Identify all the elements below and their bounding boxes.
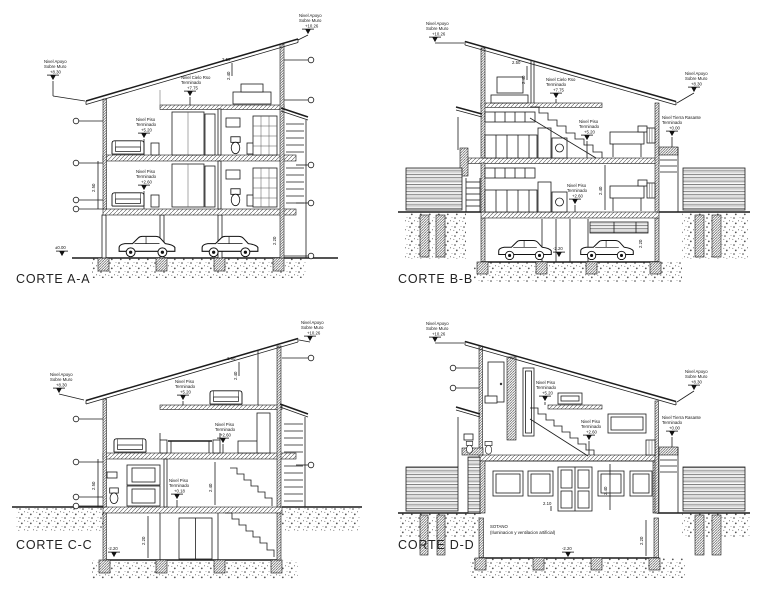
level-label-apoyo-left: Nivel Apoyo Sobre Muro +8.30 xyxy=(50,372,84,400)
level-value: +7.75 xyxy=(553,88,564,93)
main-floor-band: 2.10 2.40 xyxy=(479,455,659,513)
level-label-tierra-right: Nivel Tierra Rasante Terminado +0.00 xyxy=(662,115,702,147)
level-label-line2: Terminado xyxy=(136,122,157,127)
level-value: +10.26 xyxy=(432,32,446,37)
level-value: ±0.00 xyxy=(55,245,66,250)
dimension-label: 2.10 xyxy=(543,501,552,506)
section-title: CORTE B-B xyxy=(398,272,473,286)
dimension-label: 2.50 xyxy=(91,183,96,192)
level-label-line2: Terminado xyxy=(581,424,602,429)
level-label-line2: Terminado xyxy=(136,174,157,179)
level-label-apoyo-left: Nivel Apoyo Sobre Muro +8.30 xyxy=(44,59,85,101)
level-label-line2: Sobre Muro xyxy=(44,64,67,69)
dimension-label: 2.20 xyxy=(638,239,643,248)
level-value: +5.20 xyxy=(542,391,553,396)
level-value: +5.20 xyxy=(584,130,595,135)
dimension-label: 2.50 xyxy=(222,57,231,62)
attic-furniture xyxy=(233,84,271,104)
level-label-line2: Terminado xyxy=(662,420,683,425)
toilet-icon xyxy=(231,189,240,206)
section-title: CORTE D-D xyxy=(398,538,474,552)
sofa-icon xyxy=(114,439,146,452)
level-value: +10.26 xyxy=(432,332,446,337)
dimension-label: 2.40 xyxy=(226,71,231,80)
level-label-line2: Terminado xyxy=(175,384,196,389)
car-icon xyxy=(202,236,258,256)
level-label-basement: -2.20 xyxy=(553,246,565,257)
level-value: +10.26 xyxy=(307,331,321,336)
level-value: +5.20 xyxy=(141,128,152,133)
level-label-piso-attic: Nivel Piso Terminado +5.20 xyxy=(175,379,196,405)
level-label-piso-lower: Nivel Piso Terminado +2.60 xyxy=(567,183,588,212)
level-value: +10.26 xyxy=(305,24,319,29)
level-label-apoyo-right: Nivel Apoyo Sobre Muro +10.26 xyxy=(298,13,322,40)
dimension-label: 2.40 xyxy=(598,186,603,195)
toilet-icon xyxy=(485,441,492,454)
lower-floor-furniture xyxy=(107,465,272,506)
attic-interior xyxy=(491,61,534,103)
dimension-label: 2.20 xyxy=(141,536,146,545)
level-value: +0.18 xyxy=(174,489,185,494)
toilet-icon xyxy=(110,488,119,504)
dimension-label: 2.50 xyxy=(227,356,236,361)
level-label-line2: Terminado xyxy=(662,120,683,125)
level-value: +8.30 xyxy=(691,380,702,385)
level-label-line2: Sobre Muro xyxy=(685,76,708,81)
level-value: +8.30 xyxy=(50,70,61,75)
level-label-line2: Terminado xyxy=(169,483,190,488)
sofa-icon xyxy=(112,193,144,206)
dimension-label: 2.40 xyxy=(521,75,526,84)
datum-markers xyxy=(450,365,479,391)
corte-a-section: 2.50 2.40 2.50 2.20 Nivel Apoyo Sobre Mu… xyxy=(0,0,390,300)
dimension-label: 2.50 xyxy=(512,60,521,65)
level-label-basement: -2.20 xyxy=(108,546,120,557)
level-value: +2.60 xyxy=(586,430,597,435)
corte-b-section: 2.50 2.40 2.40 2.20 Nivel Apoyo Sobre Mu… xyxy=(390,0,780,300)
right-terrace xyxy=(659,147,678,212)
level-label-line2: Terminado xyxy=(546,82,567,87)
sofa-icon xyxy=(210,391,242,404)
level-value: +0.00 xyxy=(669,426,680,431)
basement-note: (Iluminacion y ventilacion artificial) xyxy=(490,530,556,535)
level-label-cielo: Nivel Cielo Rso Terminado +7.75 xyxy=(181,75,211,105)
dimension-label: 2.40 xyxy=(603,486,608,495)
level-label-apoyo-right: Nivel Apoyo Sobre Muro +8.30 xyxy=(677,71,708,103)
ground xyxy=(72,258,338,278)
level-value: +8.30 xyxy=(691,82,702,87)
basement-interior xyxy=(179,513,274,559)
level-label-piso-lower: Nivel Piso Terminado +0.18 xyxy=(169,478,190,507)
attic-furniture xyxy=(210,391,242,404)
dimension-label: 2.40 xyxy=(208,483,213,492)
upper-floor-interior xyxy=(485,107,655,158)
level-label-line2: Sobre Muro xyxy=(299,18,322,23)
level-value: +2.60 xyxy=(572,194,583,199)
mid-floor-furniture xyxy=(114,413,270,453)
level-value: +8.30 xyxy=(56,383,67,388)
level-value: -2.20 xyxy=(562,546,572,551)
level-label-apoyo-right: Nivel Apoyo Sobre Muro +8.30 xyxy=(677,369,708,402)
dimension-label: 2.40 xyxy=(233,371,238,380)
dimension-label: 2.50 xyxy=(91,481,96,490)
stair-tower xyxy=(281,108,308,258)
toilet-icon xyxy=(466,441,473,453)
level-label-line2: Sobre Muro xyxy=(301,325,324,330)
car-icon xyxy=(581,240,634,259)
car-icon xyxy=(119,236,175,256)
level-label-tierra-right: Nivel Tierra Rasante Terminado +0.00 xyxy=(662,415,702,447)
level-label-apoyo-right: Nivel Apoyo Sobre Muro +10.26 xyxy=(299,320,324,342)
car-icon xyxy=(499,240,552,259)
level-label-apoyo-left: Nivel Apoyo Sobre Muro +10.26 xyxy=(426,21,464,43)
section-title: CORTE C-C xyxy=(16,538,92,552)
level-label-line2: Terminado xyxy=(579,124,600,129)
level-value: +2.60 xyxy=(141,180,152,185)
dimension-label: 2.20 xyxy=(272,236,277,245)
level-label-ground: ±0.00 xyxy=(55,245,68,256)
level-label-piso-upper: Nivel Piso Terminado +5.20 xyxy=(536,380,557,405)
toilet-icon xyxy=(231,137,240,154)
sofa-icon xyxy=(112,141,144,154)
basement-label: SOTANO xyxy=(490,524,508,529)
level-value: +7.75 xyxy=(187,86,198,91)
level-value: +0.00 xyxy=(669,126,680,131)
corte-c-section: 2.50 2.40 2.50 2.40 2.20 Nivel Apoyo Sob… xyxy=(0,300,390,600)
level-label-line2: Terminado xyxy=(181,80,202,85)
level-label-line2: Sobre Muro xyxy=(426,26,449,31)
level-value: +5.20 xyxy=(180,390,191,395)
section-title: CORTE A-A xyxy=(16,272,90,286)
level-value: -2.20 xyxy=(553,246,563,251)
level-label-line2: Sobre Muro xyxy=(685,374,708,379)
level-label-apoyo-left: Nivel Apoyo Sobre Muro +10.26 xyxy=(426,321,464,343)
corte-d-section: SOTANO (Iluminacion y ventilacion artifi… xyxy=(390,300,780,600)
roof xyxy=(86,339,298,405)
blueprint-sheet: 2.50 2.40 2.50 2.20 Nivel Apoyo Sobre Mu… xyxy=(0,0,780,600)
cars xyxy=(119,236,258,256)
level-label-cielo: Nivel Cielo Rso Terminado +7.75 xyxy=(546,77,576,103)
level-label-line2: Sobre Muro xyxy=(426,326,449,331)
level-value: +2.60 xyxy=(220,433,231,438)
right-terrace xyxy=(659,447,678,513)
level-label-line2: Terminado xyxy=(567,188,588,193)
dimension-label: 2.20 xyxy=(639,536,644,545)
level-value: -2.20 xyxy=(108,546,118,551)
level-label-line2: Terminado xyxy=(215,427,236,432)
level-label-line2: Terminado xyxy=(536,385,557,390)
level-label-line2: Sobre Muro xyxy=(50,377,73,382)
